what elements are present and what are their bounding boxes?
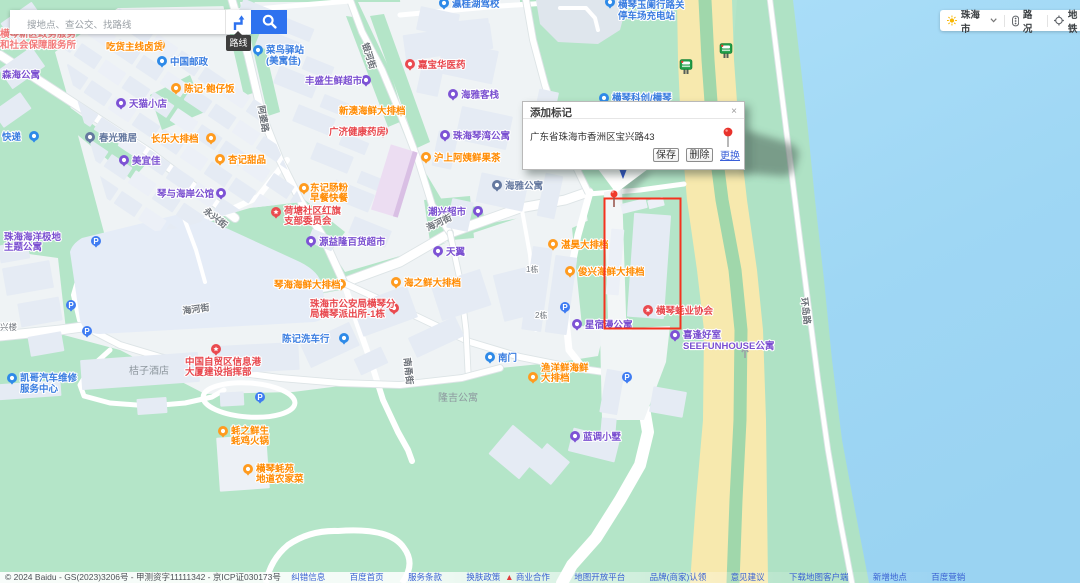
svg-text:蚝鸡火锅: 蚝鸡火锅 <box>231 435 270 447</box>
svg-text:横琴蚝业协会: 横琴蚝业协会 <box>656 305 714 317</box>
svg-text:隆吉公寓: 隆吉公寓 <box>438 391 478 404</box>
svg-text:天翼: 天翼 <box>446 247 466 258</box>
svg-text:杏记甜品: 杏记甜品 <box>227 154 266 166</box>
svg-text:琴与海岸公馆: 琴与海岸公馆 <box>157 188 215 200</box>
svg-text:SEEFUNHOUSE公寓: SEEFUNHOUSE公寓 <box>683 340 774 352</box>
svg-text:P: P <box>257 393 263 402</box>
svg-text:湛昊大排档: 湛昊大排档 <box>561 239 609 251</box>
svg-text:支部委员会: 支部委员会 <box>283 215 332 227</box>
svg-text:海雅客栈: 海雅客栈 <box>461 89 500 101</box>
svg-text:嘉宝华医药: 嘉宝华医药 <box>417 59 466 71</box>
svg-text:局横琴派出所-1栋: 局横琴派出所-1栋 <box>310 308 385 320</box>
svg-text:桔子酒店: 桔子酒店 <box>129 364 169 377</box>
svg-text:中国邮政: 中国邮政 <box>170 56 209 68</box>
svg-text:蓝调小墅: 蓝调小墅 <box>583 431 622 443</box>
svg-text:瀛桂湖驾校: 瀛桂湖驾校 <box>452 0 500 10</box>
svg-text:沪上阿姨鲜果茶: 沪上阿姨鲜果茶 <box>434 152 501 164</box>
svg-text:广济健康药房: 广济健康药房 <box>329 126 386 138</box>
svg-text:服务中心: 服务中心 <box>20 383 59 395</box>
svg-text:吃货主线卤货: 吃货主线卤货 <box>106 41 164 53</box>
svg-text:横琴玉阑行路关: 横琴玉阑行路关 <box>618 0 685 11</box>
svg-text:琴海海鲜大排档: 琴海海鲜大排档 <box>274 279 341 291</box>
svg-text:海雅公寓: 海雅公寓 <box>505 180 543 192</box>
svg-text:南门: 南门 <box>498 352 517 364</box>
svg-text:丰盛生鲜超市: 丰盛生鲜超市 <box>305 75 363 87</box>
svg-text:新澳海鲜大排档: 新澳海鲜大排档 <box>339 105 406 117</box>
svg-text:陈记·鲍仔饭: 陈记·鲍仔饭 <box>184 83 235 95</box>
svg-text:兴楼: 兴楼 <box>0 322 18 332</box>
svg-text:森海公寓: 森海公寓 <box>2 69 40 81</box>
svg-text:大排档: 大排档 <box>541 372 570 384</box>
svg-text:美宜佳: 美宜佳 <box>131 155 161 167</box>
svg-text:长乐大排档: 长乐大排档 <box>151 133 199 145</box>
svg-text:俊兴海鲜大排档: 俊兴海鲜大排档 <box>578 266 645 278</box>
svg-text:喜逢好室: 喜逢好室 <box>683 329 722 341</box>
svg-text:2栋: 2栋 <box>535 310 547 320</box>
svg-text:(美寓佳): (美寓佳) <box>266 55 301 67</box>
svg-text:和社会保障服务所: 和社会保障服务所 <box>0 39 77 51</box>
svg-text:春光雅居: 春光雅居 <box>98 132 138 144</box>
svg-text:陈记洗车行: 陈记洗车行 <box>282 333 330 345</box>
svg-text:海之鲜大排档: 海之鲜大排档 <box>404 277 462 289</box>
svg-text:1栋: 1栋 <box>526 264 538 274</box>
svg-text:P: P <box>93 237 99 246</box>
svg-text:停车场充电站: 停车场充电站 <box>618 10 676 22</box>
svg-text:P: P <box>68 301 74 310</box>
svg-text:菜鸟驿站: 菜鸟驿站 <box>265 44 305 56</box>
svg-text:珠海琴湾公寓: 珠海琴湾公寓 <box>453 130 510 142</box>
svg-text:地道农家菜: 地道农家菜 <box>256 473 304 485</box>
svg-text:P: P <box>84 327 90 336</box>
svg-text:P: P <box>562 303 568 312</box>
svg-text:主题公寓: 主题公寓 <box>4 241 42 253</box>
svg-text:凯哥汽车维修: 凯哥汽车维修 <box>20 372 78 384</box>
svg-text:早餐快餐: 早餐快餐 <box>310 192 349 204</box>
svg-text:大厦建设指挥部: 大厦建设指挥部 <box>185 366 252 378</box>
svg-text:天猫小店: 天猫小店 <box>129 98 168 110</box>
svg-text:快递: 快递 <box>2 131 22 143</box>
svg-text:P: P <box>624 373 630 382</box>
svg-text:源益隆百货超市: 源益隆百货超市 <box>319 236 386 248</box>
